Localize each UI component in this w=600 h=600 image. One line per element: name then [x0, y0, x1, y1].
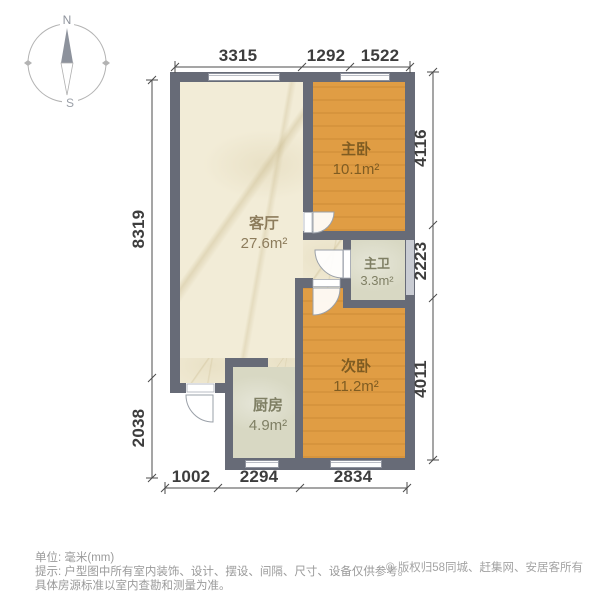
kitchen-area: 4.9m² [249, 416, 287, 436]
dim-top-3: 1522 [361, 46, 400, 66]
dim-top-1: 3315 [219, 46, 258, 66]
living-room-area: 27.6m² [241, 234, 288, 254]
living-room-floor-lower [180, 358, 225, 383]
door-leaf-entry [187, 384, 214, 392]
door-leaf-master [304, 213, 312, 233]
second-bedroom-name: 次卧 [333, 357, 379, 377]
dim-right-2: 2223 [411, 242, 431, 281]
second-bedroom-area: 11.2m² [333, 377, 379, 397]
dim-bottom-3: 2834 [334, 467, 373, 487]
wall-living-master [303, 82, 313, 212]
window-top-master [340, 73, 390, 81]
wall-kitchen-left [225, 358, 233, 458]
tip-note-line2: 具体房源标准以室内查勘和测量为准。 [35, 577, 231, 593]
bathroom-name: 主卫 [360, 255, 393, 272]
kitchen-name: 厨房 [249, 396, 287, 416]
wall-living-bottom [215, 383, 233, 393]
compass-icon: N S [24, 13, 110, 110]
copyright-text: © 版权归58同城、赶集网、安居客所有 [386, 559, 583, 575]
compass-needle-north [61, 28, 73, 63]
dim-left-1: 8319 [129, 210, 149, 249]
dim-bottom-2: 2294 [240, 467, 279, 487]
compass-needle-south [61, 63, 73, 95]
living-room-label: 客厅 27.6m² [241, 214, 288, 254]
wall-living-bottom [170, 383, 186, 393]
floorplan-page: N S [0, 0, 600, 600]
door-arc-entry [186, 395, 213, 422]
dim-left-2: 2038 [129, 409, 149, 448]
wall-second-top [340, 278, 351, 288]
wall-bath-bottom [343, 300, 405, 308]
living-room-name: 客厅 [241, 214, 288, 234]
dim-bottom-1: 1002 [172, 467, 211, 487]
dim-right-3: 4011 [411, 360, 431, 398]
wall-bath-left [343, 240, 351, 308]
master-bedroom-area: 10.1m² [333, 160, 380, 180]
dim-top-2: 1292 [307, 46, 346, 66]
second-bedroom-label: 次卧 11.2m² [333, 357, 379, 397]
kitchen-label: 厨房 4.9m² [249, 396, 287, 436]
compass-south-label: S [66, 96, 74, 110]
compass-north-label: N [63, 13, 72, 27]
wall-master-bottom [303, 231, 415, 240]
window-top-living [208, 73, 280, 81]
bathroom-label: 主卫 3.3m² [360, 255, 393, 289]
dim-right-1: 4116 [411, 129, 431, 167]
kitchen-entry-opening [268, 358, 295, 367]
wall-second-left [295, 288, 303, 458]
wall-left [170, 82, 180, 393]
master-bedroom-label: 主卧 10.1m² [333, 140, 380, 180]
wall-second-top [295, 278, 313, 288]
master-bedroom-name: 主卧 [333, 140, 380, 160]
bathroom-area: 3.3m² [360, 272, 393, 289]
